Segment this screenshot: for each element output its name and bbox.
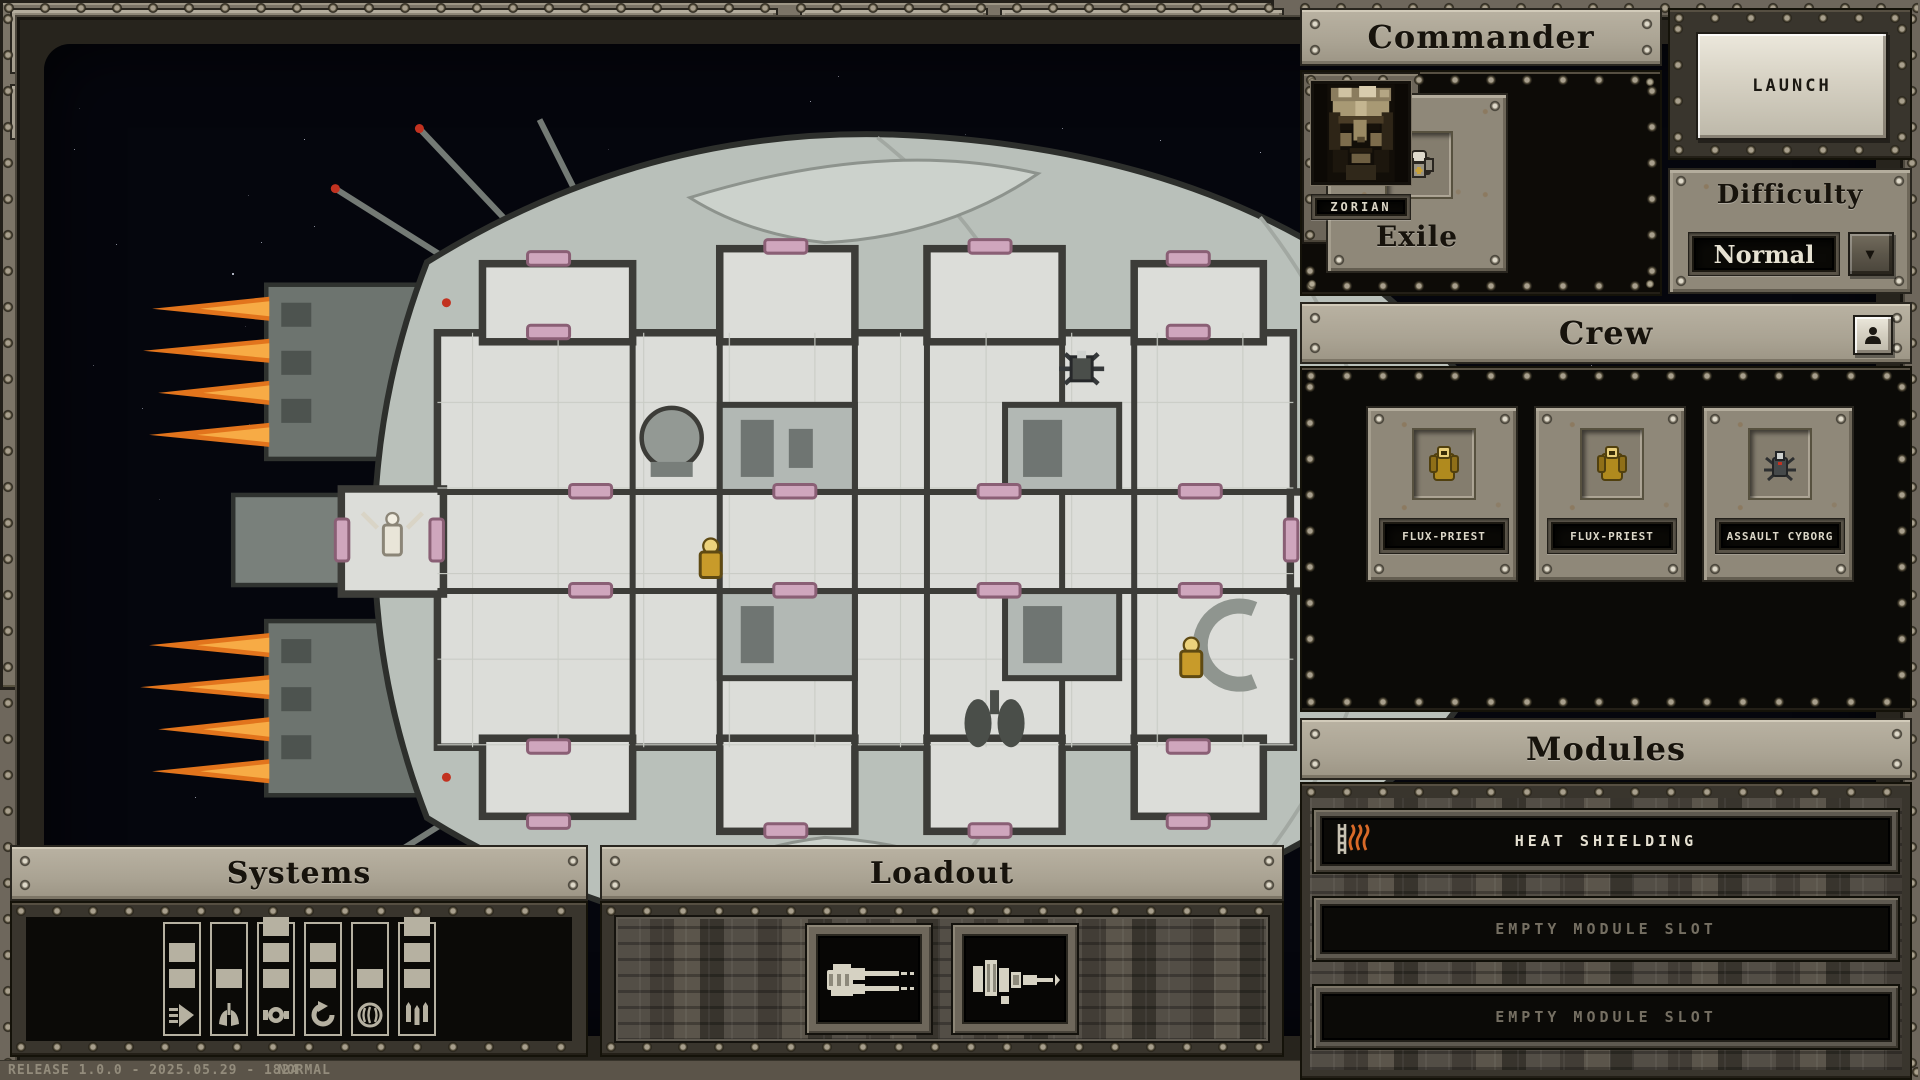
lungs-icon: [212, 1000, 246, 1030]
loadout-header: Loadout: [600, 845, 1284, 901]
systems-panel: [10, 901, 588, 1057]
gauge-thrusters: [163, 922, 201, 1036]
assault-cyborg-sprite: [1760, 444, 1800, 484]
lance-cannon-sprite: [967, 944, 1063, 1014]
ordnance-icon: [400, 1000, 434, 1030]
module-slot-empty-2[interactable]: EMPTY MODULE SLOT: [1312, 984, 1900, 1050]
mode-info: NORMAL: [278, 1063, 331, 1078]
systems-title: Systems: [227, 856, 372, 891]
gauge-ordnance: [398, 922, 436, 1036]
module-slot-heat-shielding[interactable]: HEAT SHIELDING: [1312, 808, 1900, 874]
crew-header: Crew: [1300, 302, 1912, 364]
loadout-panel: [600, 901, 1284, 1057]
crew-name: ASSAULT CYBORG: [1721, 530, 1839, 543]
module-label: EMPTY MODULE SLOT: [1495, 1008, 1717, 1026]
thruster-icon: [165, 1000, 199, 1030]
launch-button[interactable]: LAUNCH: [1696, 32, 1888, 140]
crew-sprite-recess: [1580, 428, 1644, 500]
ship-outfitting-screen: Fieldpiercer MAIN MENU RANDOMIZE HULL: [0, 0, 1920, 1080]
module-label: EMPTY MODULE SLOT: [1495, 920, 1717, 938]
module-slot-empty-1[interactable]: EMPTY MODULE SLOT: [1312, 896, 1900, 962]
person-icon: [1863, 325, 1883, 345]
crew-name: FLUX-PRIEST: [1385, 530, 1503, 543]
modules-title: Modules: [1526, 730, 1686, 768]
commander-portrait-card[interactable]: ZORIAN: [1302, 72, 1420, 244]
modules-panel: HEAT SHIELDING EMPTY MODULE SLOT EMPTY M…: [1300, 782, 1912, 1080]
gauge-cogitator: [351, 922, 389, 1036]
difficulty-value-display[interactable]: Normal: [1692, 236, 1836, 272]
crew-nameplate: ASSAULT CYBORG: [1719, 522, 1841, 550]
commander-panel: Exile: [1300, 70, 1662, 296]
commander-header: Commander: [1300, 8, 1662, 66]
archetype-name: Exile: [1328, 220, 1506, 253]
gauge-maneuvering: [304, 922, 342, 1036]
crew-name: FLUX-PRIEST: [1553, 530, 1671, 543]
heat-shield-icon: [1334, 822, 1370, 860]
difficulty-title: Difficulty: [1670, 180, 1910, 210]
twin-autocannon-sprite: [821, 944, 917, 1014]
commander-name: ZORIAN: [1317, 200, 1405, 214]
status-bar: RELEASE 1.0.0 - 2025.05.29 - 1824 NORMAL: [0, 1060, 1300, 1080]
flux-priest-sprite: [1595, 444, 1629, 484]
crew-title: Crew: [1559, 314, 1653, 352]
release-info: RELEASE 1.0.0 - 2025.05.29 - 1824: [8, 1063, 299, 1078]
commander-portrait: [1311, 81, 1411, 185]
difficulty-value: Normal: [1694, 240, 1834, 269]
crew-sprite-recess: [1412, 428, 1476, 500]
reactor-icon: [259, 1000, 293, 1030]
gauge-reactor: [257, 922, 295, 1036]
brain-icon: [353, 1000, 387, 1030]
weapon-slot-2[interactable]: [951, 923, 1079, 1035]
crew-sprite-recess: [1748, 428, 1812, 500]
commander-title: Commander: [1367, 18, 1594, 56]
zorian-portrait-art: [1314, 84, 1408, 182]
difficulty-dropdown-button[interactable]: ▼: [1848, 232, 1894, 276]
modules-header: Modules: [1300, 718, 1912, 780]
weapon-slot-1[interactable]: [805, 923, 933, 1035]
crew-panel: FLUX-PRIEST FLUX-PRIEST: [1300, 366, 1912, 712]
gauge-life-support: [210, 922, 248, 1036]
loadout-title: Loadout: [870, 856, 1014, 891]
crew-nameplate: FLUX-PRIEST: [1383, 522, 1505, 550]
crew-card-assault-cyborg[interactable]: ASSAULT CYBORG: [1702, 406, 1854, 582]
rotate-icon: [306, 1000, 340, 1030]
difficulty-plate: Difficulty Normal ▼: [1668, 168, 1912, 294]
crew-nameplate: FLUX-PRIEST: [1551, 522, 1673, 550]
crew-card-flux-priest-2[interactable]: FLUX-PRIEST: [1534, 406, 1686, 582]
module-label: HEAT SHIELDING: [1515, 832, 1697, 850]
ship-viewport-frame: [0, 0, 1274, 690]
crew-card-flux-priest-1[interactable]: FLUX-PRIEST: [1366, 406, 1518, 582]
systems-header: Systems: [10, 845, 588, 901]
launch-frame: LAUNCH: [1668, 8, 1912, 160]
commander-nameplate: ZORIAN: [1315, 198, 1407, 216]
crew-roster-button[interactable]: [1853, 315, 1893, 355]
flux-priest-sprite: [1427, 444, 1461, 484]
